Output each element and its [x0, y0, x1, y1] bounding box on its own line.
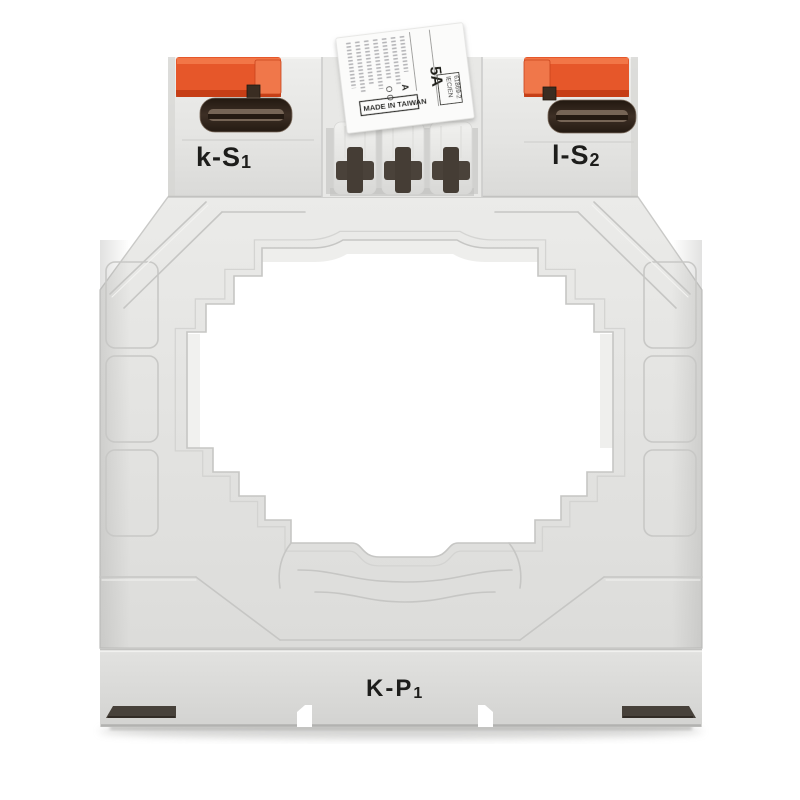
left-edge-shading [100, 240, 130, 648]
product-photo: K-P1 [0, 0, 800, 800]
din-slot-right [622, 706, 696, 718]
right-edge-shading [672, 240, 702, 648]
hole-right-wall [600, 334, 613, 448]
tower-1-cross-v [347, 147, 363, 193]
right-cap [524, 57, 629, 97]
base: K-P1 [100, 648, 702, 727]
right-terminal-slot [548, 100, 636, 133]
main-body [100, 197, 702, 648]
left-cap [176, 57, 281, 97]
left-indicator-hole [247, 85, 260, 98]
tower-2-cross-v [395, 147, 411, 193]
ct-product-image: K-P1 [0, 0, 800, 800]
top-block-left-bevel [168, 57, 175, 197]
hole-left-wall [187, 334, 200, 448]
rating-5a-text: 5A [426, 65, 445, 88]
tower-3-cross-v [443, 147, 459, 193]
tower-2 [382, 122, 424, 194]
tower-3 [430, 122, 472, 194]
din-slot-left [106, 706, 176, 718]
left-terminal-slot [200, 98, 292, 132]
rating-sticker: O O A 5A IEC/EN 61869-2 MADE IN TAIWAN [336, 23, 475, 134]
right-indicator-hole [543, 87, 556, 100]
